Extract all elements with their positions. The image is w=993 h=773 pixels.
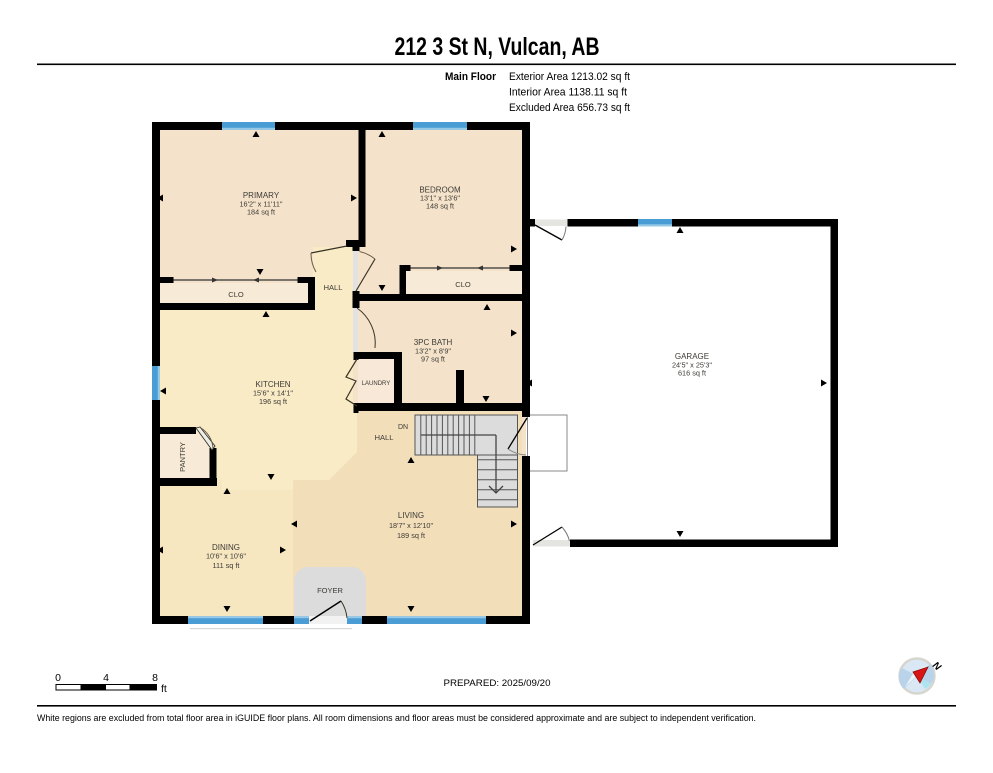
svg-text:Main Floor: Main Floor	[445, 71, 497, 83]
svg-text:White regions are excluded fro: White regions are excluded from total fl…	[37, 713, 756, 723]
svg-text:LAUNDRY: LAUNDRY	[362, 381, 391, 387]
svg-text:HALL: HALL	[324, 283, 343, 292]
svg-text:8: 8	[152, 672, 158, 684]
svg-text:ft: ft	[161, 683, 167, 695]
svg-text:212 3 St N, Vulcan, AB: 212 3 St N, Vulcan, AB	[395, 33, 600, 61]
svg-text:0: 0	[55, 672, 61, 684]
svg-text:10'6" x 10'6": 10'6" x 10'6"	[206, 552, 246, 561]
svg-text:97 sq ft: 97 sq ft	[421, 355, 445, 364]
svg-text:Interior Area 1138.11 sq ft: Interior Area 1138.11 sq ft	[509, 87, 628, 99]
svg-text:LIVING: LIVING	[398, 511, 424, 520]
svg-text:HALL: HALL	[375, 433, 394, 442]
svg-text:18'7" x 12'10": 18'7" x 12'10"	[389, 521, 433, 530]
svg-text:111 sq ft: 111 sq ft	[213, 561, 240, 570]
svg-text:PREPARED: 2025/09/20: PREPARED: 2025/09/20	[444, 678, 551, 689]
svg-text:FOYER: FOYER	[317, 586, 343, 595]
svg-text:616 sq ft: 616 sq ft	[678, 369, 706, 378]
svg-text:4: 4	[103, 672, 109, 684]
svg-text:184 sq ft: 184 sq ft	[247, 208, 275, 217]
svg-text:Excluded Area 656.73 sq ft: Excluded Area 656.73 sq ft	[509, 102, 631, 114]
svg-text:196 sq ft: 196 sq ft	[259, 397, 287, 406]
svg-text:CLO: CLO	[228, 290, 244, 299]
svg-text:189 sq ft: 189 sq ft	[397, 531, 425, 540]
svg-text:148 sq ft: 148 sq ft	[426, 202, 454, 211]
svg-text:PANTRY: PANTRY	[178, 442, 187, 472]
svg-text:CLO: CLO	[455, 280, 471, 289]
svg-text:Exterior Area 1213.02 sq ft: Exterior Area 1213.02 sq ft	[509, 71, 631, 83]
svg-text:DN: DN	[398, 424, 408, 431]
